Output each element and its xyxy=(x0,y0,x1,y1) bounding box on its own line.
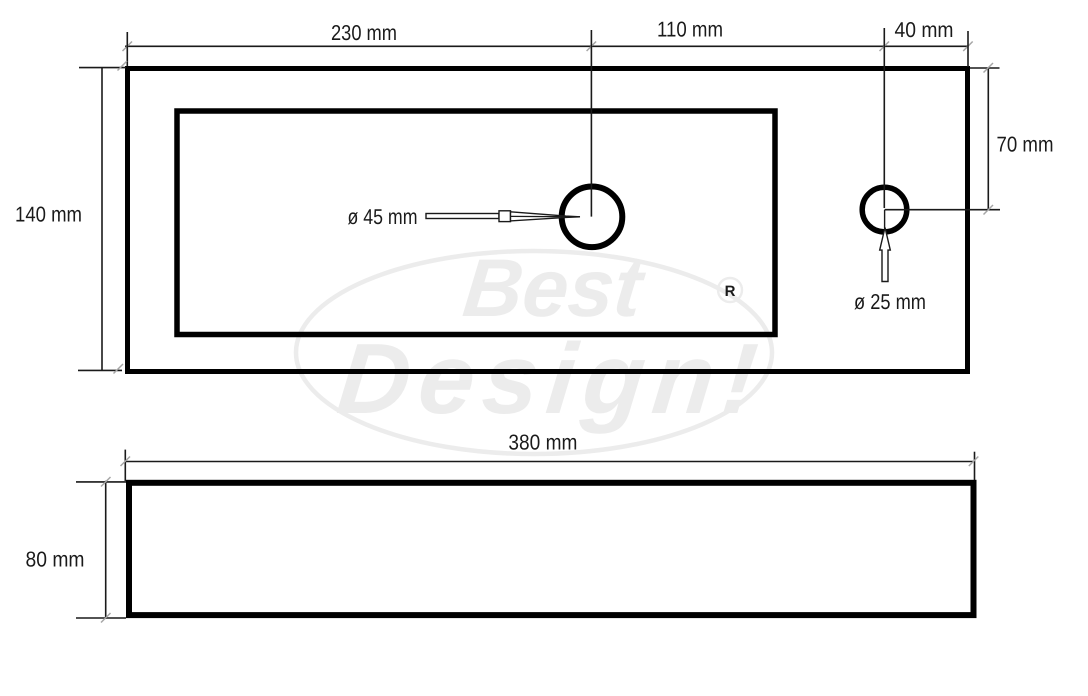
svg-text:140 mm: 140 mm xyxy=(15,203,82,227)
svg-text:Best: Best xyxy=(459,243,650,334)
svg-text:Design!: Design! xyxy=(333,323,771,435)
svg-text:230 mm: 230 mm xyxy=(331,21,397,45)
svg-text:380 mm: 380 mm xyxy=(508,431,577,455)
svg-text:110 mm: 110 mm xyxy=(657,18,723,42)
svg-text:ø 45 mm: ø 45 mm xyxy=(348,205,418,229)
svg-text:ø 25 mm: ø 25 mm xyxy=(854,290,926,314)
svg-text:80 mm: 80 mm xyxy=(26,548,85,572)
svg-text:40 mm: 40 mm xyxy=(895,18,954,42)
svg-text:R: R xyxy=(725,283,736,300)
svg-text:70 mm: 70 mm xyxy=(997,133,1054,157)
